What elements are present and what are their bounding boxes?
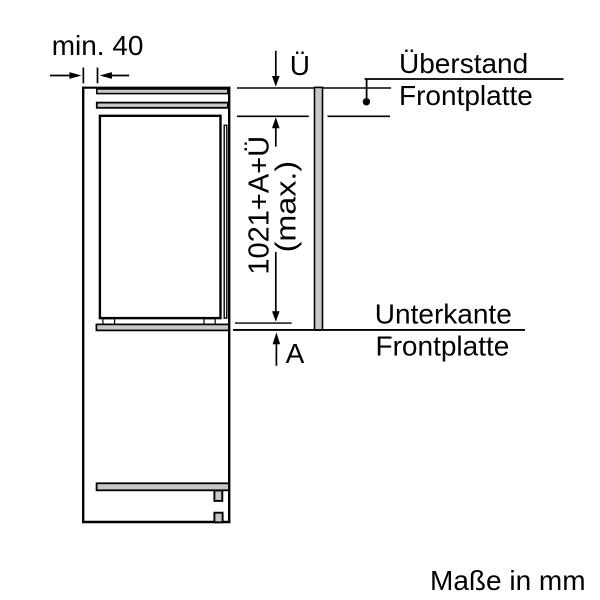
svg-text:Frontplatte: Frontplatte [399,80,533,111]
svg-text:Maße in mm: Maße in mm [430,565,586,596]
svg-text:A: A [286,338,305,369]
svg-text:Ü: Ü [290,50,310,81]
svg-text:min. 40: min. 40 [52,30,144,61]
svg-text:(max.): (max.) [269,161,302,253]
svg-text:Überstand: Überstand [399,48,528,79]
svg-text:Frontplatte: Frontplatte [376,330,510,361]
svg-text:Unterkante: Unterkante [375,299,512,330]
